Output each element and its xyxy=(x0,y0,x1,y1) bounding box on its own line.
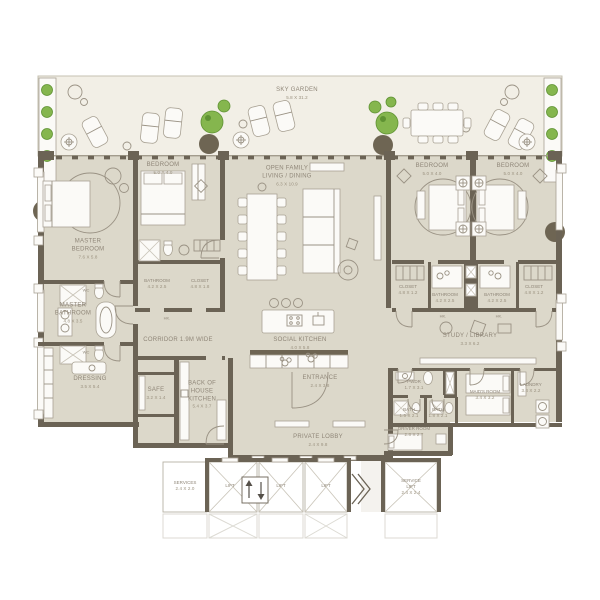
room-label-corridor: CORRIDOR 1.9M WIDE xyxy=(143,337,213,345)
room-label-driver-room: DRIVER ROOM2.8 X 2.7 xyxy=(398,426,430,438)
room-label-laundry: LAUNDRY3.4 X 2.2 xyxy=(520,382,541,394)
room-label-wc-b: WC xyxy=(83,349,90,354)
room-label-master-bedroom: MASTERBEDROOM7.6 X 5.8 xyxy=(72,238,105,259)
room-label-closet-4: CLOSET4.8 X 1.2 xyxy=(525,284,544,296)
room-label-maids-room: MAID'S ROOM3.4 X 3.2 xyxy=(470,389,500,401)
room-label-closet-3: CLOSET4.8 X 1.2 xyxy=(399,284,418,296)
floor-plan: SKY GARDEN5.8 X 31.2 MASTERBEDROOM7.6 X … xyxy=(0,0,600,600)
lift-arrow-icon xyxy=(242,477,268,503)
room-label-hk-c: HK. xyxy=(496,313,503,318)
room-label-study-library: STUDY / LIBRARY3.3 X 6.2 xyxy=(443,333,498,347)
room-label-bath-1: BATH1.5 X 2.1 xyxy=(400,407,419,419)
room-label-entrance: ENTRANCE2.4 X 3.8 xyxy=(302,375,337,389)
room-label-bath-2: BATH1.8 X 2.1 xyxy=(429,407,448,419)
room-label-bathroom-4: BATHROOM4.2 X 2.5 xyxy=(484,292,510,304)
room-label-bathroom-3: BATHROOM4.2 X 2.5 xyxy=(432,292,458,304)
room-label-private-lobby: PRIVATE LOBBY2.4 X 9.8 xyxy=(293,434,343,448)
room-label-services: SERVICES2.4 X 2.0 xyxy=(174,480,197,492)
room-label-open-family: OPEN FAMILYLIVING / DINING6.3 X 10.9 xyxy=(262,165,311,186)
room-label-bathroom-2: BATHROOM4.2 X 2.5 xyxy=(144,278,170,290)
ghost-outlines xyxy=(163,514,437,538)
room-label-boh-kitchen: BACK OFHOUSEKITCHEN5.4 X 3.7 xyxy=(188,380,216,409)
room-label-bedroom-4: BEDROOM5.0 X 4.0 xyxy=(497,163,530,177)
room-label-master-bathroom: MASTERBATHROOM4.8 X 3.5 xyxy=(55,302,91,323)
lift-core xyxy=(163,458,441,512)
room-label-bedroom-3: BEDROOM5.0 X 4.0 xyxy=(416,163,449,177)
room-label-dressing: DRESSING3.5 X 5.4 xyxy=(73,376,106,390)
room-label-lift-2: LIFT xyxy=(276,483,285,489)
room-label-hk-a: HK. xyxy=(164,315,171,320)
room-label-service-lift: SERVICELIFT2.4 X 2.4 xyxy=(401,478,421,496)
room-label-social-kitchen: SOCIAL KITCHEN4.0 X 5.8 xyxy=(273,337,326,351)
room-label-pwdr: PWDR1.7 X 3.1 xyxy=(405,379,424,391)
room-label-lift-1: LIFT xyxy=(225,483,234,489)
room-label-bedroom-2: BEDROOM5.0 X 4.0 xyxy=(147,162,180,176)
room-label-wc-a: WC xyxy=(83,287,90,292)
room-label-sky-garden: SKY GARDEN5.8 X 31.2 xyxy=(276,87,318,101)
room-label-safe: SAFE3.2 X 1.4 xyxy=(147,387,166,401)
room-label-closet-2: CLOSET4.8 X 1.8 xyxy=(191,278,210,290)
room-label-lift-3: LIFT xyxy=(321,483,330,489)
room-label-hk-b: HK. xyxy=(440,313,447,318)
